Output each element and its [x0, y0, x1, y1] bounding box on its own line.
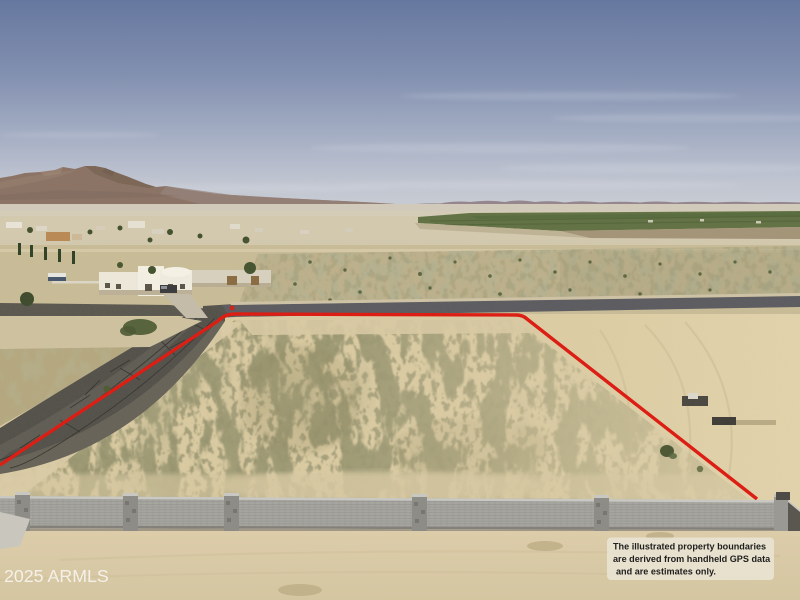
svg-text:and are estimates only.: and are estimates only. [616, 567, 716, 577]
svg-text:The illustrated property bound: The illustrated property boundaries [613, 542, 766, 552]
svg-text:2025 ARMLS: 2025 ARMLS [4, 566, 109, 586]
svg-text:are derived from handheld GPS: are derived from handheld GPS data [613, 554, 771, 564]
